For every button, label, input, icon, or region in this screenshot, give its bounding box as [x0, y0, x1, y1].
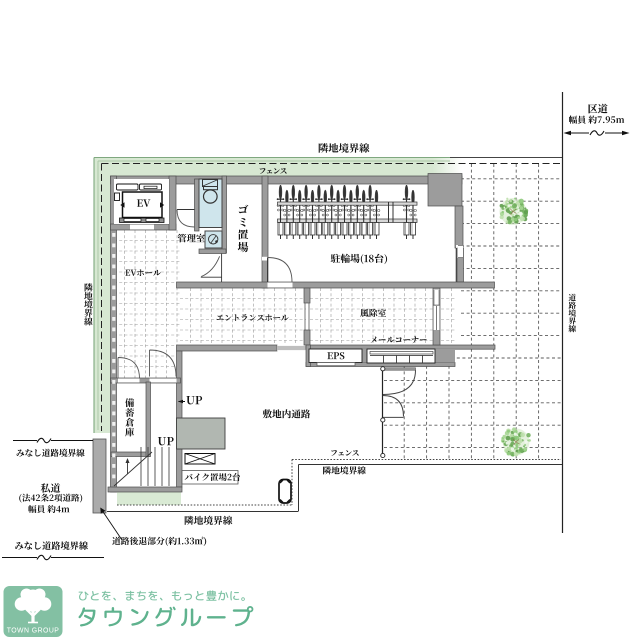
- svg-text:TOWN GROUP: TOWN GROUP: [7, 628, 60, 635]
